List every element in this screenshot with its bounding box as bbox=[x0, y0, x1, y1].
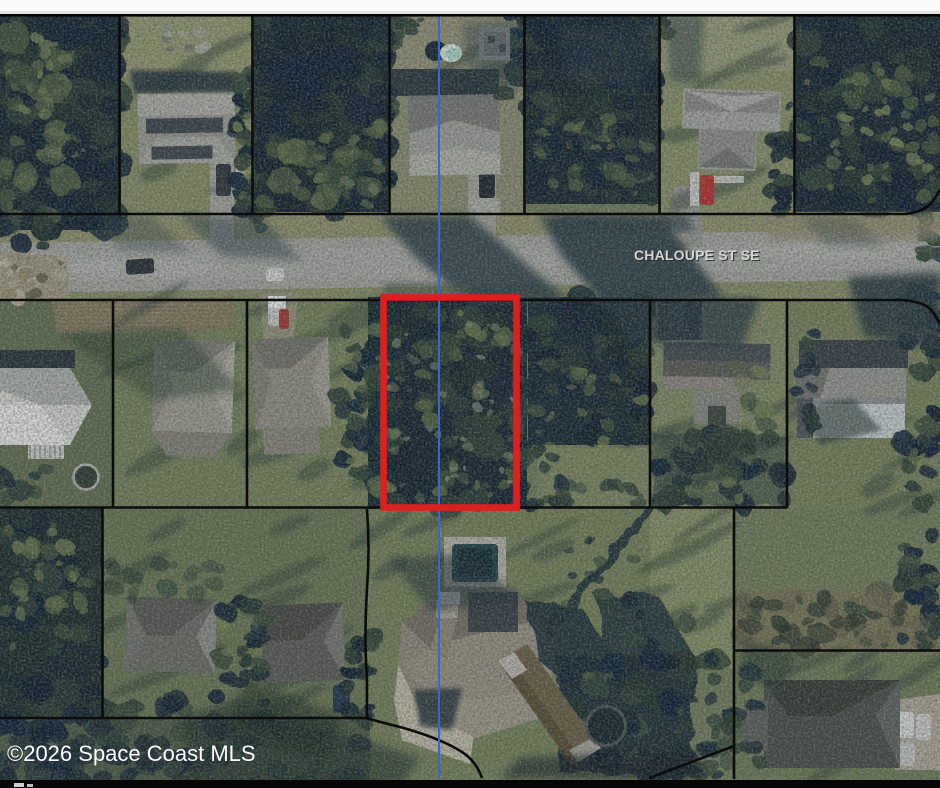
svg-text:CHALOUPE ST SE: CHALOUPE ST SE bbox=[634, 247, 760, 263]
svg-text:©2026 Space Coast MLS: ©2026 Space Coast MLS bbox=[7, 741, 256, 766]
